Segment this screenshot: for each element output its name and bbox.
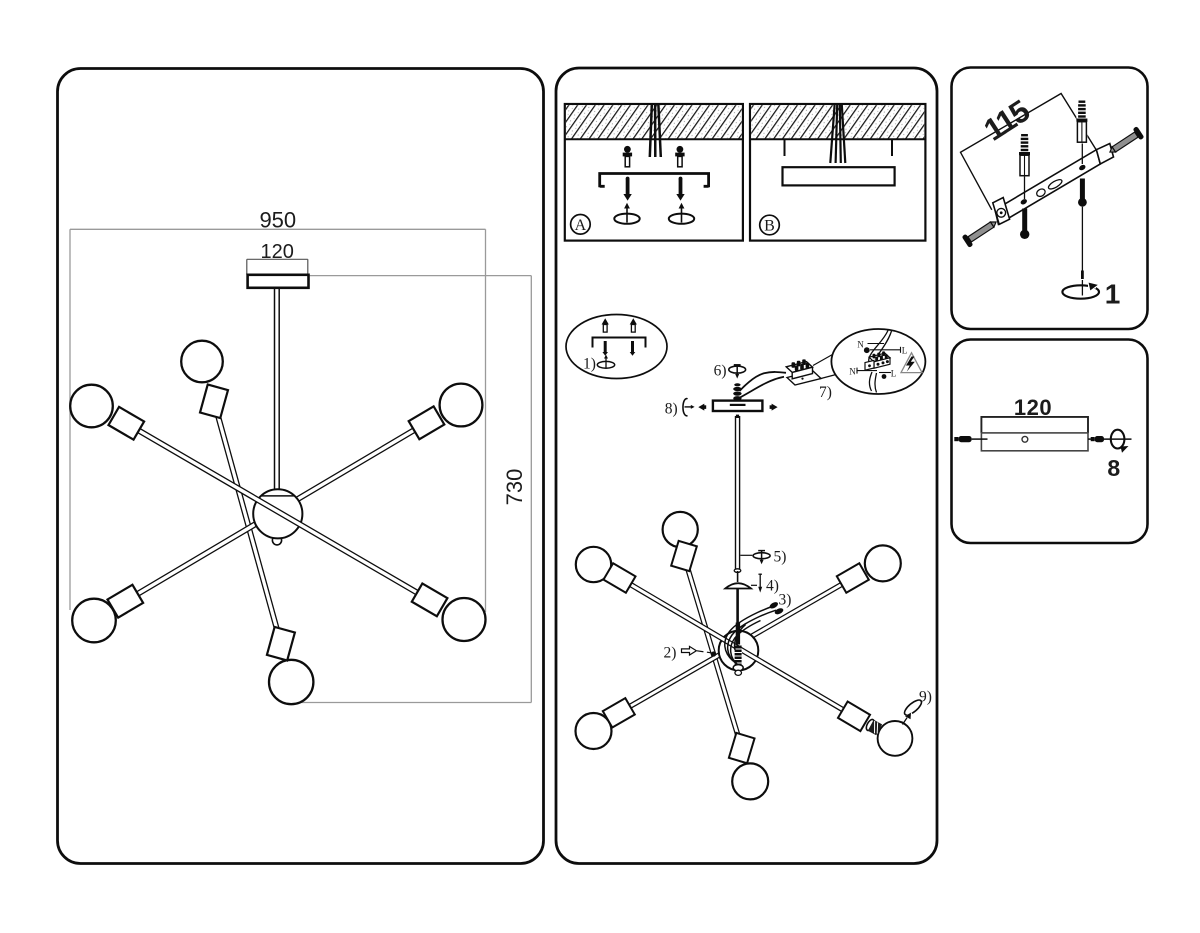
svg-text:6): 6): [714, 363, 727, 380]
svg-text:7): 7): [819, 384, 832, 401]
svg-text:B: B: [764, 218, 775, 235]
svg-text:8: 8: [1107, 455, 1120, 481]
svg-text:8): 8): [665, 400, 678, 417]
svg-text:1): 1): [583, 356, 596, 373]
svg-text:2): 2): [664, 644, 677, 661]
svg-text:N: N: [849, 367, 856, 377]
svg-text:L: L: [902, 346, 908, 356]
svg-text:3): 3): [779, 591, 792, 608]
svg-text:1: 1: [1105, 279, 1121, 310]
svg-text:L: L: [891, 369, 897, 379]
svg-text:120: 120: [261, 241, 294, 263]
svg-text:N: N: [857, 340, 864, 350]
svg-text:5): 5): [774, 549, 787, 566]
svg-text:730: 730: [502, 469, 527, 506]
svg-text:A: A: [575, 217, 587, 234]
svg-text:4): 4): [766, 577, 779, 594]
svg-text:950: 950: [259, 208, 296, 233]
